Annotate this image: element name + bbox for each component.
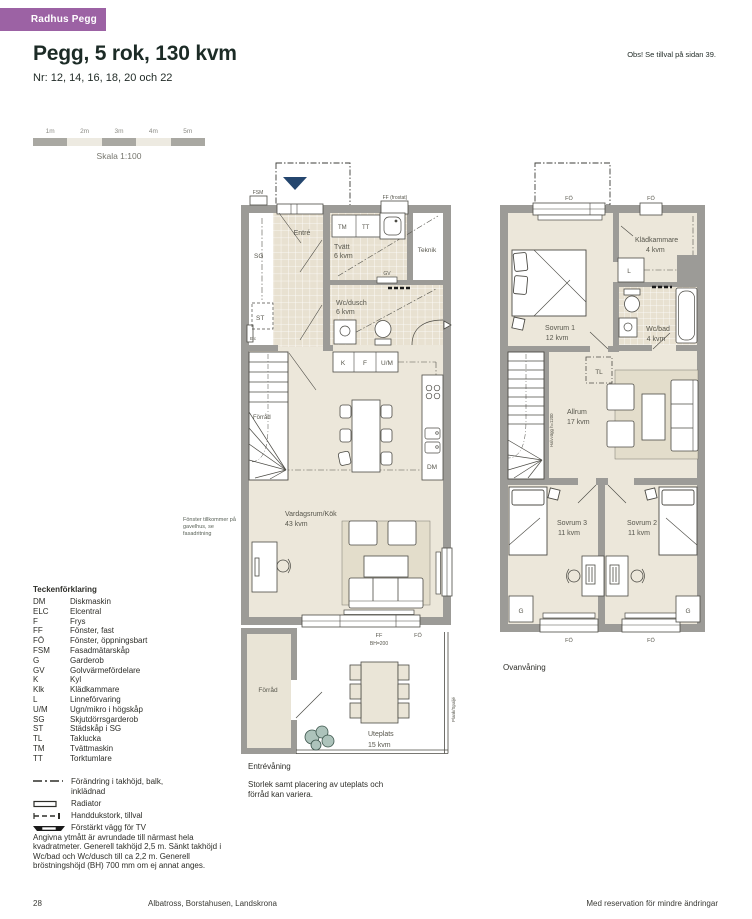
legend-row: KlkKlädkammare — [33, 685, 233, 695]
sovrum3-area: 11 kvm — [558, 530, 580, 537]
legend-desc: Skjutdörrsgarderob — [70, 715, 138, 725]
ugn-mikro-label: U/M — [381, 360, 393, 367]
legend-row: FFFönster, fast — [33, 626, 233, 636]
unit-numbers: Nr: 12, 14, 16, 18, 20 och 22 — [33, 72, 172, 84]
series-badge-label: Radhus Pegg — [31, 14, 97, 25]
kladkammare-label: Klädkammare — [635, 237, 678, 244]
dining-table — [352, 400, 380, 472]
coffee-table — [364, 556, 408, 577]
uteplats-label: Uteplats — [368, 731, 394, 738]
teknik-label: Teknik — [418, 247, 437, 254]
patio-table-group — [350, 662, 409, 723]
plan1-floor-label: Entrévåning — [248, 762, 291, 771]
symbol-row: Förstärkt vägg för TV — [33, 823, 243, 833]
washbasin — [619, 318, 637, 337]
legend-abbr: FF — [33, 626, 70, 636]
footer-disclaimer: Med reservation för mindre ändringar — [586, 899, 718, 908]
plan2-floor-label: Ovanvåning — [503, 663, 546, 672]
scale-label: 1m — [33, 128, 67, 135]
legend-row: SGSkjutdörrsgarderob — [33, 715, 233, 725]
window-sovrum3 — [540, 619, 598, 632]
legend-abbr: K — [33, 675, 70, 685]
vardagsrum-label: Vardagsrum/Kök — [285, 511, 337, 518]
legend-row: GVGolvvärmefördelare — [33, 666, 233, 676]
wcdusch-area: 6 kvm — [336, 309, 355, 316]
scale-segment — [67, 138, 101, 146]
legend-desc: Taklucka — [70, 734, 101, 744]
sg-label: SG — [254, 253, 263, 260]
brochure-page: Radhus Pegg Pegg, 5 rok, 130 kvm Nr: 12,… — [0, 0, 752, 919]
legend-abbr: G — [33, 656, 70, 666]
sovrum3-label: Sovrum 3 — [557, 520, 587, 527]
armchair — [388, 521, 416, 545]
tm-label: TM — [338, 225, 347, 231]
legend-desc: Diskmaskin — [70, 597, 111, 607]
legend-row: TLTaklucka — [33, 734, 233, 744]
sovrum2-label: Sovrum 2 — [627, 520, 657, 527]
legend-abbr: TT — [33, 754, 70, 764]
legend-row: TMTvättmaskin — [33, 744, 233, 754]
l-label: L — [627, 268, 631, 275]
gavel-window-annotation: Fönster tillkommer på gavelhus, se fasad… — [183, 517, 237, 538]
nightstand — [512, 317, 525, 330]
tillval-note: Obs! Se tillval på sidan 39. — [627, 50, 716, 59]
legend-desc: Golvvärmefördelare — [70, 666, 140, 676]
bh-label: BH=200 — [370, 641, 388, 647]
wcbad-label: Wc/bad — [646, 326, 670, 333]
tl-label: TL — [595, 369, 603, 376]
symbol-legend: Förändring i takhöjd, balk, inklädnad Ra… — [33, 777, 243, 835]
radiator-icon — [33, 799, 71, 800]
legend-row: TTTorktumlare — [33, 754, 233, 764]
legend-row: U/MUgn/mikro i högskåp — [33, 705, 233, 715]
entrance-arrow-icon — [283, 177, 307, 190]
symbol-row: Radiator — [33, 799, 243, 809]
legend-desc: Fasadmätarskåp — [70, 646, 130, 656]
fo-label: FÖ — [647, 195, 655, 202]
staircase — [508, 352, 544, 479]
kladkammare-area: 4 kvm — [646, 247, 665, 254]
nightstand — [548, 488, 560, 500]
legend-abbr: Klk — [33, 685, 70, 695]
sovrum1-area: 12 kvm — [546, 335, 569, 342]
legend-desc: Kyl — [70, 675, 81, 685]
linen-cabinet — [618, 258, 644, 282]
legend-abbr: FSM — [33, 646, 70, 656]
legend-desc: Garderob — [70, 656, 104, 666]
legend-row: STStädskåp i SG — [33, 724, 233, 734]
bathtub — [676, 288, 697, 343]
nightstand — [645, 488, 657, 500]
coffee-table — [642, 394, 665, 440]
legend-desc: Ugn/mikro i högskåp — [70, 705, 143, 715]
symbol-label: Förändring i takhöjd, balk, inklädnad — [71, 777, 191, 796]
floorplan-ovanvaning: FÖ FÖ FÖ FÖ Sovrum 1 12 kvm Klädkammare … — [492, 155, 718, 655]
st-label: ST — [256, 315, 264, 322]
tvatt-area: 6 kvm — [334, 253, 353, 260]
scale-bar-segments — [33, 138, 205, 146]
page-number: 28 — [33, 899, 42, 908]
toilet — [625, 296, 640, 312]
dm-label: DM — [427, 464, 437, 471]
legend-desc: Städskåp i SG — [70, 724, 121, 734]
wcdusch-label: Wc/dusch — [336, 300, 367, 307]
legend-desc: Torktumlare — [70, 754, 112, 764]
legend-desc: Klädkammare — [70, 685, 119, 695]
page-title: Pegg, 5 rok, 130 kvm — [33, 42, 237, 66]
scale-label: 4m — [136, 128, 170, 135]
scale-segment — [171, 138, 205, 146]
symbol-label: Radiator — [71, 799, 191, 809]
forrad-stair-label: Förråd — [253, 414, 271, 421]
tt-label: TT — [362, 225, 370, 231]
washbasin — [334, 320, 356, 344]
symbol-label: Förstärkt vägg för TV — [71, 823, 191, 833]
ceiling-change-icon — [33, 777, 71, 778]
legend-desc: Frys — [70, 617, 86, 627]
sovrum2-area: 11 kvm — [628, 530, 650, 537]
vardagsrum-area: 43 kvm — [285, 521, 308, 528]
armchair — [349, 521, 377, 545]
scale-segment — [102, 138, 136, 146]
toilet — [375, 321, 391, 338]
scale-segment — [33, 138, 67, 146]
legend-abbr: ELC — [33, 607, 70, 617]
legend-row: ELCElcentral — [33, 607, 233, 617]
legend-abbr: ST — [33, 724, 70, 734]
symbol-label: Handdukstork, tillval — [71, 811, 191, 821]
legend-row: KKyl — [33, 675, 233, 685]
legend-abbr: FÖ — [33, 636, 70, 646]
legend-desc: Fönster, öppningsbart — [70, 636, 147, 646]
elc-label: Elc — [250, 336, 257, 341]
sovrum1-label: Sovrum 1 — [545, 325, 575, 332]
scale-label: 3m — [102, 128, 136, 135]
legend-row: LLinneförvaring — [33, 695, 233, 705]
scale-label: 5m — [171, 128, 205, 135]
armchair — [607, 421, 634, 447]
forrad-shed-label: Förråd — [258, 686, 278, 694]
legend-desc: Fönster, fast — [70, 626, 114, 636]
legend-abbr: U/M — [33, 705, 70, 715]
legend-row: DMDiskmaskin — [33, 597, 233, 607]
tv-wall-icon — [33, 823, 71, 824]
plank-label: Plank/Spaljé — [451, 696, 456, 722]
patio-table — [361, 662, 398, 723]
footer-project: Albatross, Borstahusen, Landskrona — [148, 899, 277, 908]
allrum-area: 17 kvm — [567, 419, 590, 426]
plan1-variation-note: Storlek samt placering av uteplats och f… — [248, 780, 400, 799]
entrance-canopy — [276, 163, 350, 207]
fo-label: FÖ — [565, 637, 573, 644]
legend-desc: Elcentral — [70, 607, 101, 617]
legend-abbr: DM — [33, 597, 70, 607]
fo-label: FÖ — [565, 195, 573, 202]
series-badge: Radhus Pegg — [0, 8, 106, 31]
scale-bar-labels: 1m 2m 3m 4m 5m — [33, 128, 205, 135]
armchair — [607, 384, 634, 410]
legend-abbr: SG — [33, 715, 70, 725]
fsm-label: FSM — [253, 190, 264, 196]
halvvagg-label: Halvvägg h=1200 — [549, 413, 554, 447]
legend-row: FFrys — [33, 617, 233, 627]
sofa — [349, 578, 423, 608]
legend-desc: Tvättmaskin — [70, 744, 113, 754]
legend-row: FSMFasadmätarskåp — [33, 646, 233, 656]
uteplats-area: 15 kvm — [368, 742, 391, 749]
towel-dryer-icon — [33, 811, 71, 812]
allrum-label: Allrum — [567, 409, 587, 416]
legend-abbr: TL — [33, 734, 70, 744]
g-label: G — [518, 608, 523, 615]
legend-abbr: F — [33, 617, 70, 627]
dining-group — [338, 400, 392, 472]
scale-label: 2m — [67, 128, 101, 135]
legend-abbr: L — [33, 695, 70, 705]
bush-icon — [305, 726, 334, 750]
entry-door — [277, 204, 323, 214]
measurement-footnote: Angivna ytmått är avrundade till närmast… — [33, 833, 239, 870]
window-kladkammare — [640, 203, 662, 215]
legend-title: Teckenförklaring — [33, 585, 233, 594]
legend-desc: Linneförvaring — [70, 695, 121, 705]
sofa — [671, 380, 698, 451]
window-ff-frostat — [381, 201, 408, 214]
fo-label: FÖ — [647, 637, 655, 644]
gv-label: GV — [383, 271, 391, 277]
symbol-row: Handdukstork, tillval — [33, 811, 243, 821]
legend-row: FÖFönster, öppningsbart — [33, 636, 233, 646]
ff-frostat-label: FF (frostat) — [383, 195, 408, 201]
tvatt-label: Tvätt — [334, 244, 350, 251]
scale-segment — [136, 138, 170, 146]
frys-label: F — [363, 360, 367, 367]
legend-row: GGarderob — [33, 656, 233, 666]
symbol-row: Förändring i takhöjd, balk, inklädnad — [33, 777, 243, 796]
legend-abbr: TM — [33, 744, 70, 754]
fsm-box — [250, 196, 267, 205]
scale-bar: 1m 2m 3m 4m 5m Skala 1:100 — [33, 128, 205, 161]
legend-abbr: GV — [33, 666, 70, 676]
kyl-label: K — [341, 360, 346, 367]
fo-bottom-label: FÖ — [414, 632, 422, 639]
g-label: G — [685, 608, 690, 615]
ff-bottom-label: FF — [376, 633, 383, 639]
window-sovrum2 — [622, 619, 680, 632]
legend: Teckenförklaring DMDiskmaskin ELCElcentr… — [33, 585, 233, 764]
